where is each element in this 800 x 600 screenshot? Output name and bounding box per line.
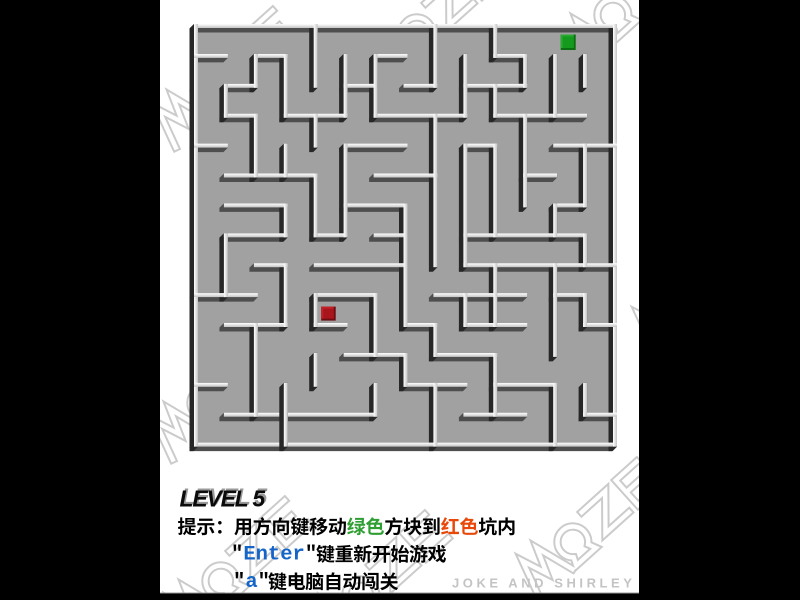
svg-text:"Enter": "Enter" — [231, 544, 317, 567]
svg-text:"a": "a" — [233, 571, 270, 594]
svg-text:JOKE AND SHIRLEY: JOKE AND SHIRLEY — [452, 576, 635, 591]
svg-text:LEVEL 5: LEVEL 5 — [180, 486, 267, 512]
